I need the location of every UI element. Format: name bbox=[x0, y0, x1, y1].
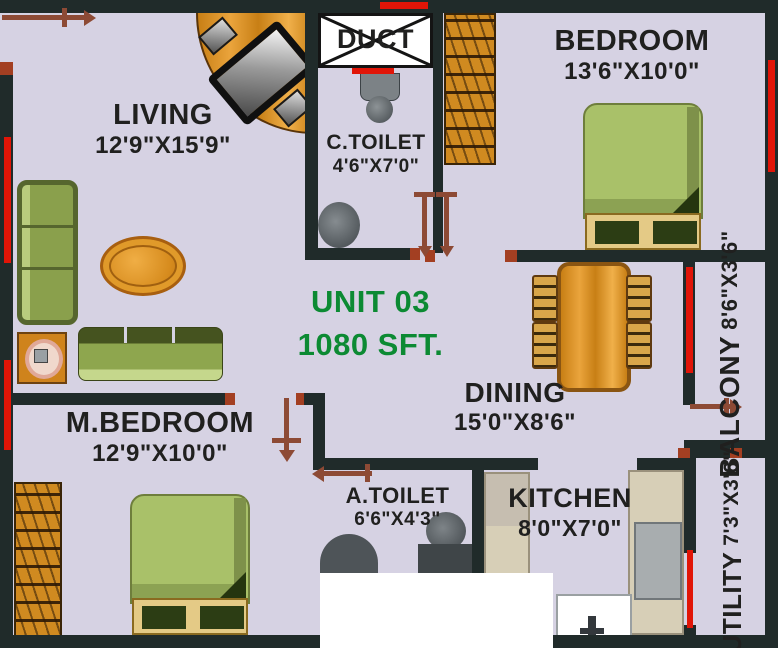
wall bbox=[684, 625, 696, 648]
window-marker bbox=[4, 360, 11, 450]
room-label-duct: DUCT bbox=[318, 24, 433, 56]
coffee-table bbox=[100, 236, 186, 296]
room-name: DUCT bbox=[318, 24, 433, 56]
dining-chair bbox=[532, 322, 558, 369]
door-swing-tick bbox=[365, 464, 370, 482]
bed-fold-corner bbox=[220, 572, 246, 598]
door-swing-arrowhead bbox=[440, 246, 454, 257]
door-swing-arrow bbox=[422, 196, 427, 246]
wall bbox=[684, 458, 696, 553]
door-swing-tick bbox=[272, 438, 301, 443]
room-name: DINING bbox=[440, 376, 590, 409]
door-swing-tick bbox=[414, 192, 435, 197]
sofa-cushion-gap bbox=[124, 327, 127, 343]
room-name: KITCHEN bbox=[500, 483, 640, 515]
room-name: BEDROOM bbox=[552, 24, 712, 58]
window-marker bbox=[686, 267, 693, 373]
room-dims: 7'3"X3'6" bbox=[720, 451, 744, 546]
door-swing-tick bbox=[436, 192, 457, 197]
sofa-horizontal bbox=[78, 327, 223, 381]
window-marker bbox=[687, 550, 693, 628]
room-name: M.BEDROOM bbox=[55, 406, 265, 440]
room-label-atoilet: A.TOILET 6'6"X4'3" bbox=[330, 483, 465, 531]
room-label-mbedroom: M.BEDROOM 12'9"X10'0" bbox=[55, 406, 265, 469]
room-dims: 8'6"X3'6" bbox=[717, 230, 743, 329]
door-jamb bbox=[0, 62, 13, 75]
door-swing-arrowhead bbox=[279, 450, 295, 462]
room-label-ctoilet: C.TOILET 4'6"X7'0" bbox=[306, 131, 446, 178]
faucet bbox=[580, 628, 604, 634]
room-label-kitchen: KITCHEN 8'0"X7'0" bbox=[500, 483, 640, 542]
room-label-bedroom: BEDROOM 13'6"X10'0" bbox=[552, 24, 712, 87]
room-label-living: LIVING 12'9"X15'9" bbox=[58, 98, 268, 161]
stove bbox=[634, 522, 682, 600]
toilet-tank bbox=[418, 544, 478, 574]
room-dims: 6'6"X4'3" bbox=[330, 509, 465, 531]
room-dims: 13'6"X10'0" bbox=[552, 58, 712, 86]
door-jamb bbox=[505, 250, 517, 262]
bed-pillow bbox=[200, 606, 244, 629]
door-swing-arrowhead bbox=[312, 466, 324, 482]
unit-area: 1080 SFT. bbox=[288, 327, 453, 364]
blank-patch bbox=[320, 573, 553, 648]
unit-label: UNIT 03 1080 SFT. bbox=[288, 284, 453, 363]
vent-marker bbox=[380, 2, 428, 9]
room-dims: 12'9"X15'9" bbox=[58, 132, 268, 160]
bed-pillow bbox=[653, 221, 697, 244]
toilet-wc bbox=[318, 202, 360, 248]
room-name: A.TOILET bbox=[330, 483, 465, 509]
door-swing-tick bbox=[62, 8, 67, 27]
floor-plan: LIVING 12'9"X15'9" DUCT C.TOILET 4'6"X7'… bbox=[0, 0, 778, 648]
room-name: C.TOILET bbox=[306, 131, 446, 156]
washbasin bbox=[320, 534, 378, 574]
bed-fold-corner bbox=[673, 187, 699, 213]
room-label-dining: DINING 15'0"X8'6" bbox=[440, 376, 590, 437]
room-label-utility: UTILITY 7'3"X3'6" bbox=[697, 467, 767, 637]
door-jamb bbox=[678, 448, 690, 458]
bed-pillow bbox=[595, 221, 639, 244]
dining-chair bbox=[626, 322, 652, 369]
lamp-center bbox=[34, 349, 48, 363]
room-dims: 4'6"X7'0" bbox=[306, 156, 446, 178]
wall bbox=[313, 458, 538, 470]
washbasin-bowl bbox=[366, 96, 393, 123]
window-marker bbox=[4, 137, 11, 263]
mbedroom-bed bbox=[130, 494, 252, 635]
room-dims: 15'0"X8'6" bbox=[440, 409, 590, 437]
dining-chair bbox=[626, 275, 652, 322]
sofa-vertical bbox=[17, 180, 78, 325]
bedroom-bed bbox=[583, 103, 705, 250]
window-marker bbox=[768, 60, 775, 172]
door-jamb bbox=[225, 393, 235, 405]
room-label-balcony: BALCONY 8'6"X3'6" bbox=[694, 249, 766, 459]
room-name: LIVING bbox=[58, 98, 268, 132]
unit-name: UNIT 03 bbox=[288, 284, 453, 321]
bedroom-wardrobe bbox=[444, 13, 496, 165]
vent-marker bbox=[352, 68, 394, 74]
room-name: UTILITY bbox=[717, 552, 748, 648]
wall bbox=[13, 393, 225, 405]
door-swing-arrowhead bbox=[418, 246, 432, 257]
door-jamb bbox=[296, 393, 304, 405]
mbedroom-wardrobe bbox=[14, 482, 62, 639]
room-dims: 8'0"X7'0" bbox=[500, 515, 640, 542]
door-swing-arrow bbox=[2, 15, 84, 20]
dining-table bbox=[557, 262, 631, 392]
bed-pillow bbox=[142, 606, 186, 629]
sofa-cushion-gap bbox=[172, 327, 175, 343]
door-swing-arrow bbox=[444, 196, 449, 246]
dining-chair bbox=[532, 275, 558, 322]
wall bbox=[305, 248, 410, 260]
door-swing-arrowhead bbox=[84, 10, 96, 26]
room-dims: 12'9"X10'0" bbox=[55, 440, 265, 468]
